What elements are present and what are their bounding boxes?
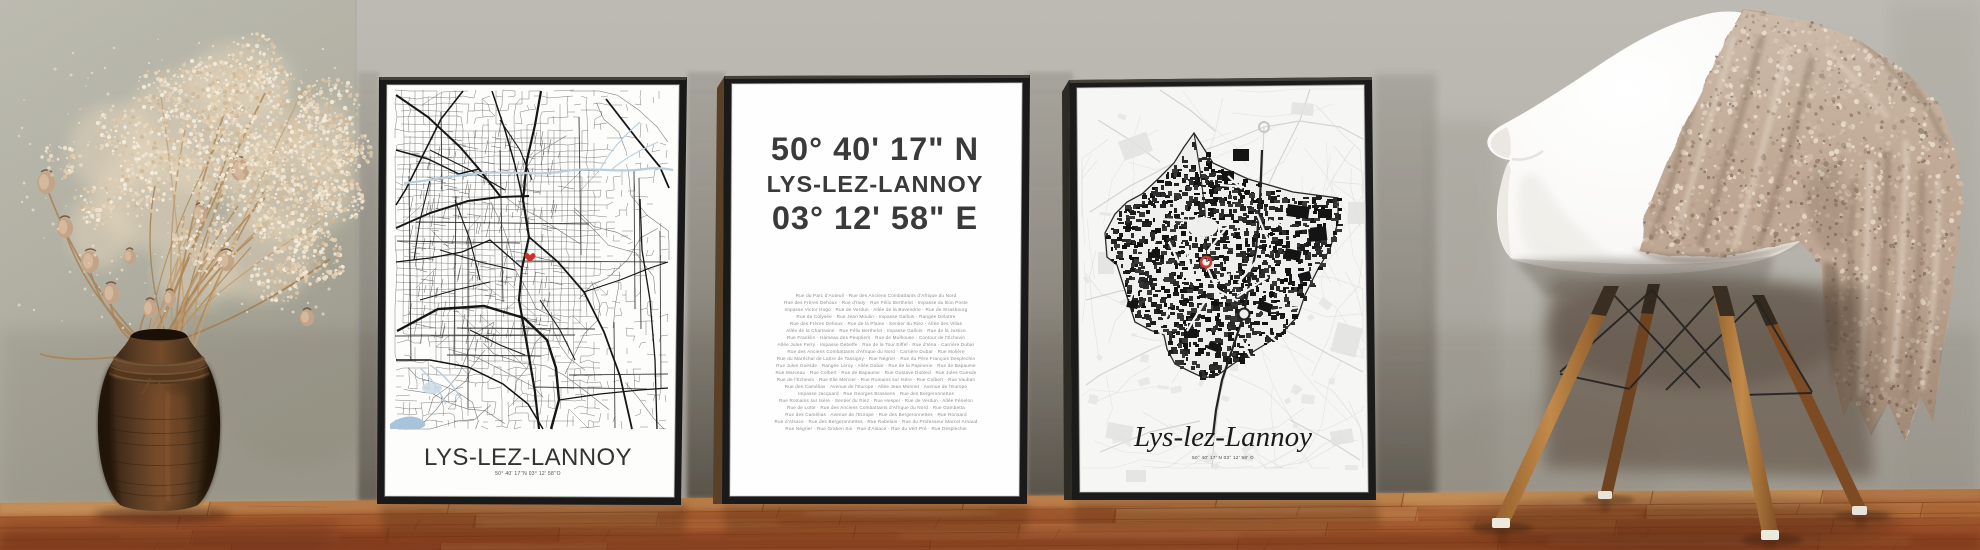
svg-text:Rue du Maréchal de Lattre de T: Rue du Maréchal de Lattre de Tassigny · … — [777, 356, 976, 361]
svg-text:Impasse Victor Hugo · Rue de: Impasse Victor Hugo · Rue de Verdun · Al… — [785, 307, 968, 312]
svg-text:Rue Négrier · Rue Gratien Si: Rue Négrier · Rue Gratien Six · Rue d'Al… — [785, 426, 967, 431]
svg-text:LYS-LEZ-LANNOY: LYS-LEZ-LANNOY — [767, 171, 984, 197]
svg-text:Allée Jules Ferry · Impasse: Allée Jules Ferry · Impasse Debeffe · Ru… — [778, 342, 975, 347]
svg-text:50° 40' 17''N 03° 12' 58''O: 50° 40' 17''N 03° 12' 58''O — [495, 471, 561, 477]
svg-text:Rue du Colysée · Rue Jean Mo: Rue du Colysée · Rue Jean Moulin · Impas… — [796, 314, 955, 319]
svg-text:Rue Marceau · Rue Colbert ·: Rue Marceau · Rue Colbert · Rue de Bapau… — [775, 370, 976, 375]
svg-text:Rue des Anciens Combattants d': Rue des Anciens Combattants d'Afrique du… — [787, 349, 964, 354]
svg-text:Rue des Frères Dehoux · Rue: Rue des Frères Dehoux · Rue de la Plaine… — [790, 321, 963, 326]
svg-text:Rue des Frères Dehoux · Rue: Rue des Frères Dehoux · Rue d'Italy · Ru… — [784, 300, 968, 305]
svg-text:Rue de Lotte · Rue des Ancie: Rue de Lotte · Rue des Anciens Combattan… — [787, 405, 965, 410]
svg-text:Rue Romains sur Isère · Sent: Rue Romains sur Isère · Sentier du Riez … — [779, 398, 973, 403]
svg-text:Rue Franklin · Hameau des Pe: Rue Franklin · Hameau des Peupliers · Ru… — [787, 334, 965, 340]
svg-text:Impasse Jacquard · Rue Georg: Impasse Jacquard · Rue Georges Brassens … — [798, 391, 955, 396]
svg-text:LYS-LEZ-LANNOY: LYS-LEZ-LANNOY — [424, 444, 632, 471]
svg-text:Rue d'Alsace · Rue des Berge: Rue d'Alsace · Rue des Bergeronnettes · … — [775, 419, 978, 424]
svg-text:50° 40' 17' N 03° 12' 58' O: 50° 40' 17' N 03° 12' 58' O — [1192, 455, 1254, 460]
svg-text:Rue du Parc d'Auteuil · Rue: Rue du Parc d'Auteuil · Rue des Anciens … — [796, 293, 957, 298]
svg-text:Lys-lez-Lannoy: Lys-lez-Lannoy — [1133, 421, 1312, 453]
svg-text:03° 12' 58" E: 03° 12' 58" E — [772, 200, 978, 236]
svg-text:Rue de l'Échevin · Rue Elie: Rue de l'Échevin · Rue Elie Mercier · Ru… — [777, 376, 976, 382]
svg-text:Rue Jules Guesde · Rangée Le: Rue Jules Guesde · Rangée Leroy · Allée … — [776, 363, 976, 368]
svg-text:Rue des Camélias · Avenue de: Rue des Camélias · Avenue de l'Europe · … — [785, 412, 967, 417]
svg-text:Rue des Camélias · Avenue de: Rue des Camélias · Avenue de l'Europe · … — [785, 384, 968, 389]
svg-text:Allée de la Chartraine · Rue: Allée de la Chartraine · Rue Félix Berth… — [786, 328, 966, 333]
svg-text:50° 40' 17" N: 50° 40' 17" N — [771, 131, 979, 167]
